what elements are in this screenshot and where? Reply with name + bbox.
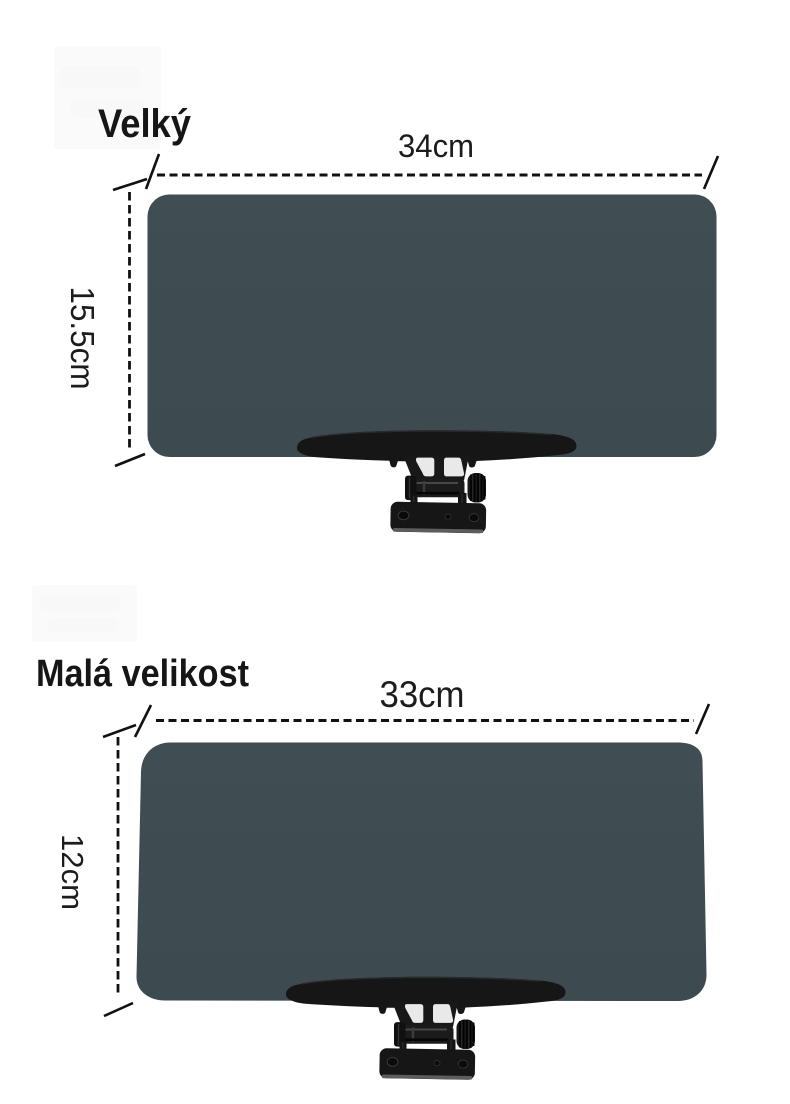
svg-text:15.5cm: 15.5cm (64, 287, 101, 390)
svg-text:Malá velikost: Malá velikost (36, 653, 249, 695)
svg-text:34cm: 34cm (398, 128, 474, 164)
svg-text:33cm: 33cm (380, 674, 465, 715)
svg-text:Velký: Velký (98, 102, 192, 146)
svg-text:12cm: 12cm (55, 834, 90, 910)
